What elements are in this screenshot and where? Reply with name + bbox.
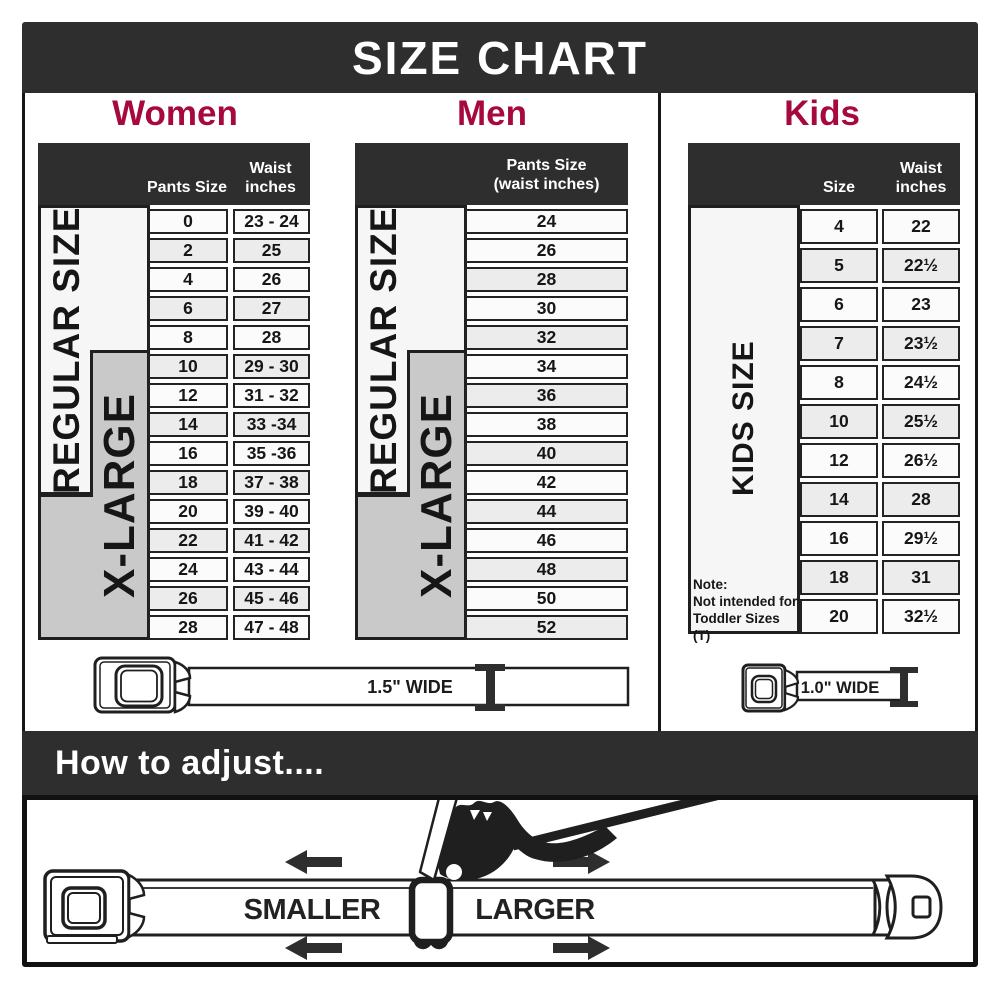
women-rows: 0 23 - 24 2 25 4 26 6 27 8 28 10 29 - 30…	[148, 209, 310, 644]
kids-seatbelt-buckle-icon	[743, 665, 798, 711]
pants-size-cell: 42	[465, 470, 628, 495]
waist-cell: 24½	[882, 365, 960, 400]
waist-cell: 37 - 38	[233, 470, 310, 495]
pants-size-cell: 32	[465, 325, 628, 350]
waist-cell: 47 - 48	[233, 615, 310, 640]
table-row: 22 41 - 42	[148, 528, 310, 553]
table-row: 10 29 - 30	[148, 354, 310, 379]
size-cell: 5	[800, 248, 878, 283]
adult-seatbelt-buckle-icon	[95, 658, 190, 712]
table-row: 8 28	[148, 325, 310, 350]
table-row: 24	[465, 209, 628, 234]
table-row: 24 43 - 44	[148, 557, 310, 582]
adult-belt-width-label: 1.5" WIDE	[367, 677, 453, 697]
pulled-strap-line	[513, 800, 724, 846]
table-row: 4 26	[148, 267, 310, 292]
size-cell: 14	[800, 482, 878, 517]
larger-arrow-bottom-icon	[553, 936, 610, 960]
size-cell: 6	[800, 287, 878, 322]
pants-size-cell: 6	[148, 296, 228, 321]
pants-size-cell: 46	[465, 528, 628, 553]
women-pants-size-header: Pants Size	[144, 178, 230, 197]
panel-divider	[658, 93, 661, 731]
table-row: 14 28	[800, 482, 960, 517]
waist-cell: 26	[233, 267, 310, 292]
women-xlarge-label: X-LARGE	[91, 352, 149, 640]
kids-size-label: KIDS SIZE	[692, 263, 796, 573]
page-title: SIZE CHART	[352, 31, 648, 85]
waist-cell: 31	[882, 560, 960, 595]
pants-size-cell: 52	[465, 615, 628, 640]
table-row: 6 23	[800, 287, 960, 322]
waist-cell: 22½	[882, 248, 960, 283]
belt-tip-icon	[873, 876, 941, 938]
pants-size-cell: 20	[148, 499, 228, 524]
waist-cell: 26½	[882, 443, 960, 478]
table-row: 40	[465, 441, 628, 466]
women-waist-header: Waist inches	[231, 159, 310, 197]
smaller-label: SMALLER	[244, 894, 381, 926]
pants-size-cell: 24	[148, 557, 228, 582]
table-row: 36	[465, 383, 628, 408]
kids-note-line2: Not intended for	[693, 593, 799, 610]
table-row: 12 26½	[800, 443, 960, 478]
table-row: 28 47 - 48	[148, 615, 310, 640]
table-row: 10 25½	[800, 404, 960, 439]
men-xlarge-label: X-LARGE	[408, 352, 466, 640]
larger-label: LARGER	[475, 894, 595, 926]
table-row: 20 39 - 40	[148, 499, 310, 524]
size-cell: 10	[800, 404, 878, 439]
pants-size-cell: 16	[148, 441, 228, 466]
pants-size-cell: 22	[148, 528, 228, 553]
waist-cell: 45 - 46	[233, 586, 310, 611]
table-row: 20 32½	[800, 599, 960, 634]
table-row: 34	[465, 354, 628, 379]
size-chart-page: SIZE CHART Women Men Kids Pants Size Wai…	[0, 0, 1000, 1000]
table-row: 16 29½	[800, 521, 960, 556]
adjust-belt-diagram: SMALLER LARGER	[27, 800, 973, 962]
waist-cell: 33 -34	[233, 412, 310, 437]
size-cell: 7	[800, 326, 878, 361]
kids-rows: 4 22 5 22½ 6 23 7 23½ 8 24½ 10 25½ 12 26…	[800, 209, 960, 638]
waist-cell: 39 - 40	[233, 499, 310, 524]
table-row: 48	[465, 557, 628, 582]
waist-cell: 23 - 24	[233, 209, 310, 234]
men-header-line2: (waist inches)	[465, 175, 628, 194]
men-size-table: Pants Size (waist inches) REGULAR SIZE X…	[355, 143, 628, 640]
how-to-adjust-bar: How to adjust....	[22, 731, 978, 795]
pants-size-cell: 10	[148, 354, 228, 379]
pants-size-cell: 26	[148, 586, 228, 611]
men-rows: 24 26 28 30 32 34 36 38 40 42 44 46	[465, 209, 628, 644]
pants-size-cell: 48	[465, 557, 628, 582]
waist-cell: 41 - 42	[233, 528, 310, 553]
table-row: 32	[465, 325, 628, 350]
table-row: 2 25	[148, 238, 310, 263]
table-row: 14 33 -34	[148, 412, 310, 437]
pants-size-cell: 40	[465, 441, 628, 466]
table-row: 18 31	[800, 560, 960, 595]
hand-illustration	[420, 800, 724, 880]
pants-size-cell: 12	[148, 383, 228, 408]
kids-note-line3: Toddler Sizes (T)	[693, 610, 799, 644]
size-cell: 18	[800, 560, 878, 595]
table-row: 5 22½	[800, 248, 960, 283]
table-row: 46	[465, 528, 628, 553]
pants-size-cell: 0	[148, 209, 228, 234]
waist-cell: 29½	[882, 521, 960, 556]
kids-table-header: Size Waist inches	[688, 143, 960, 205]
kids-size-table: Size Waist inches KIDS SIZE Note: Not in…	[688, 143, 960, 640]
table-row: 0 23 - 24	[148, 209, 310, 234]
table-row: 8 24½	[800, 365, 960, 400]
women-regular-size-label: REGULAR SIZE	[40, 205, 94, 495]
table-row: 38	[465, 412, 628, 437]
table-row: 4 22	[800, 209, 960, 244]
pants-size-cell: 14	[148, 412, 228, 437]
pants-size-cell: 38	[465, 412, 628, 437]
table-row: 26 45 - 46	[148, 586, 310, 611]
adjust-illustration-panel: SMALLER LARGER	[22, 795, 978, 967]
table-row: 12 31 - 32	[148, 383, 310, 408]
table-row: 26	[465, 238, 628, 263]
women-waist-header-line1: Waist	[231, 159, 310, 178]
pants-size-cell: 2	[148, 238, 228, 263]
pants-size-cell: 36	[465, 383, 628, 408]
kids-waist-header-line2: inches	[882, 178, 960, 197]
kids-waist-header-line1: Waist	[882, 159, 960, 178]
pants-size-cell: 8	[148, 325, 228, 350]
kids-heading: Kids	[712, 94, 932, 134]
table-row: 52	[465, 615, 628, 640]
men-pants-size-header: Pants Size (waist inches)	[465, 156, 628, 194]
women-waist-header-line2: inches	[231, 178, 310, 197]
kids-note: Note: Not intended for Toddler Sizes (T)	[693, 576, 799, 644]
adult-belt-illustration: 1.5" WIDE	[90, 652, 635, 722]
thumb-highlight	[446, 864, 462, 880]
size-cell: 12	[800, 443, 878, 478]
pants-size-cell: 4	[148, 267, 228, 292]
waist-cell: 23	[882, 287, 960, 322]
waist-cell: 29 - 30	[233, 354, 310, 379]
waist-cell: 22	[882, 209, 960, 244]
how-to-adjust-title: How to adjust....	[22, 744, 324, 783]
table-row: 6 27	[148, 296, 310, 321]
kids-belt-width-label: 1.0" WIDE	[801, 679, 879, 697]
men-heading: Men	[382, 94, 602, 134]
kids-belt-illustration: 1.0" WIDE	[735, 656, 930, 718]
waist-cell: 23½	[882, 326, 960, 361]
waist-cell: 25½	[882, 404, 960, 439]
waist-cell: 32½	[882, 599, 960, 634]
men-header-line1: Pants Size	[465, 156, 628, 175]
pants-size-cell: 28	[465, 267, 628, 292]
pants-size-cell: 34	[465, 354, 628, 379]
pants-size-cell: 50	[465, 586, 628, 611]
kids-waist-header: Waist inches	[882, 159, 960, 197]
waist-cell: 35 -36	[233, 441, 310, 466]
men-regular-size-label: REGULAR SIZE	[357, 205, 411, 495]
pants-size-cell: 26	[465, 238, 628, 263]
pants-size-cell: 24	[465, 209, 628, 234]
pants-size-cell: 28	[148, 615, 228, 640]
table-row: 30	[465, 296, 628, 321]
smaller-arrow-bottom-icon	[285, 936, 342, 960]
table-row: 42	[465, 470, 628, 495]
women-table-header: Pants Size Waist inches	[38, 143, 310, 205]
size-cell: 4	[800, 209, 878, 244]
kids-size-header: Size	[800, 178, 878, 197]
adjust-buckle-icon	[45, 871, 144, 943]
size-cell: 16	[800, 521, 878, 556]
size-cell: 8	[800, 365, 878, 400]
table-row: 28	[465, 267, 628, 292]
table-row: 50	[465, 586, 628, 611]
table-row: 18 37 - 38	[148, 470, 310, 495]
table-row: 44	[465, 499, 628, 524]
waist-cell: 25	[233, 238, 310, 263]
waist-cell: 28	[882, 482, 960, 517]
pants-size-cell: 30	[465, 296, 628, 321]
table-row: 16 35 -36	[148, 441, 310, 466]
women-heading: Women	[65, 94, 285, 134]
pants-size-cell: 44	[465, 499, 628, 524]
waist-cell: 31 - 32	[233, 383, 310, 408]
women-size-table: Pants Size Waist inches REGULAR SIZE X-L…	[38, 143, 310, 640]
pants-size-cell: 18	[148, 470, 228, 495]
smaller-arrow-top-icon	[285, 850, 342, 874]
size-cell: 20	[800, 599, 878, 634]
belt-adjuster-icon	[412, 880, 450, 947]
men-table-header: Pants Size (waist inches)	[355, 143, 628, 205]
table-row: 7 23½	[800, 326, 960, 361]
waist-cell: 28	[233, 325, 310, 350]
kids-note-line1: Note:	[693, 576, 799, 593]
title-bar: SIZE CHART	[22, 22, 978, 93]
waist-cell: 27	[233, 296, 310, 321]
waist-cell: 43 - 44	[233, 557, 310, 582]
